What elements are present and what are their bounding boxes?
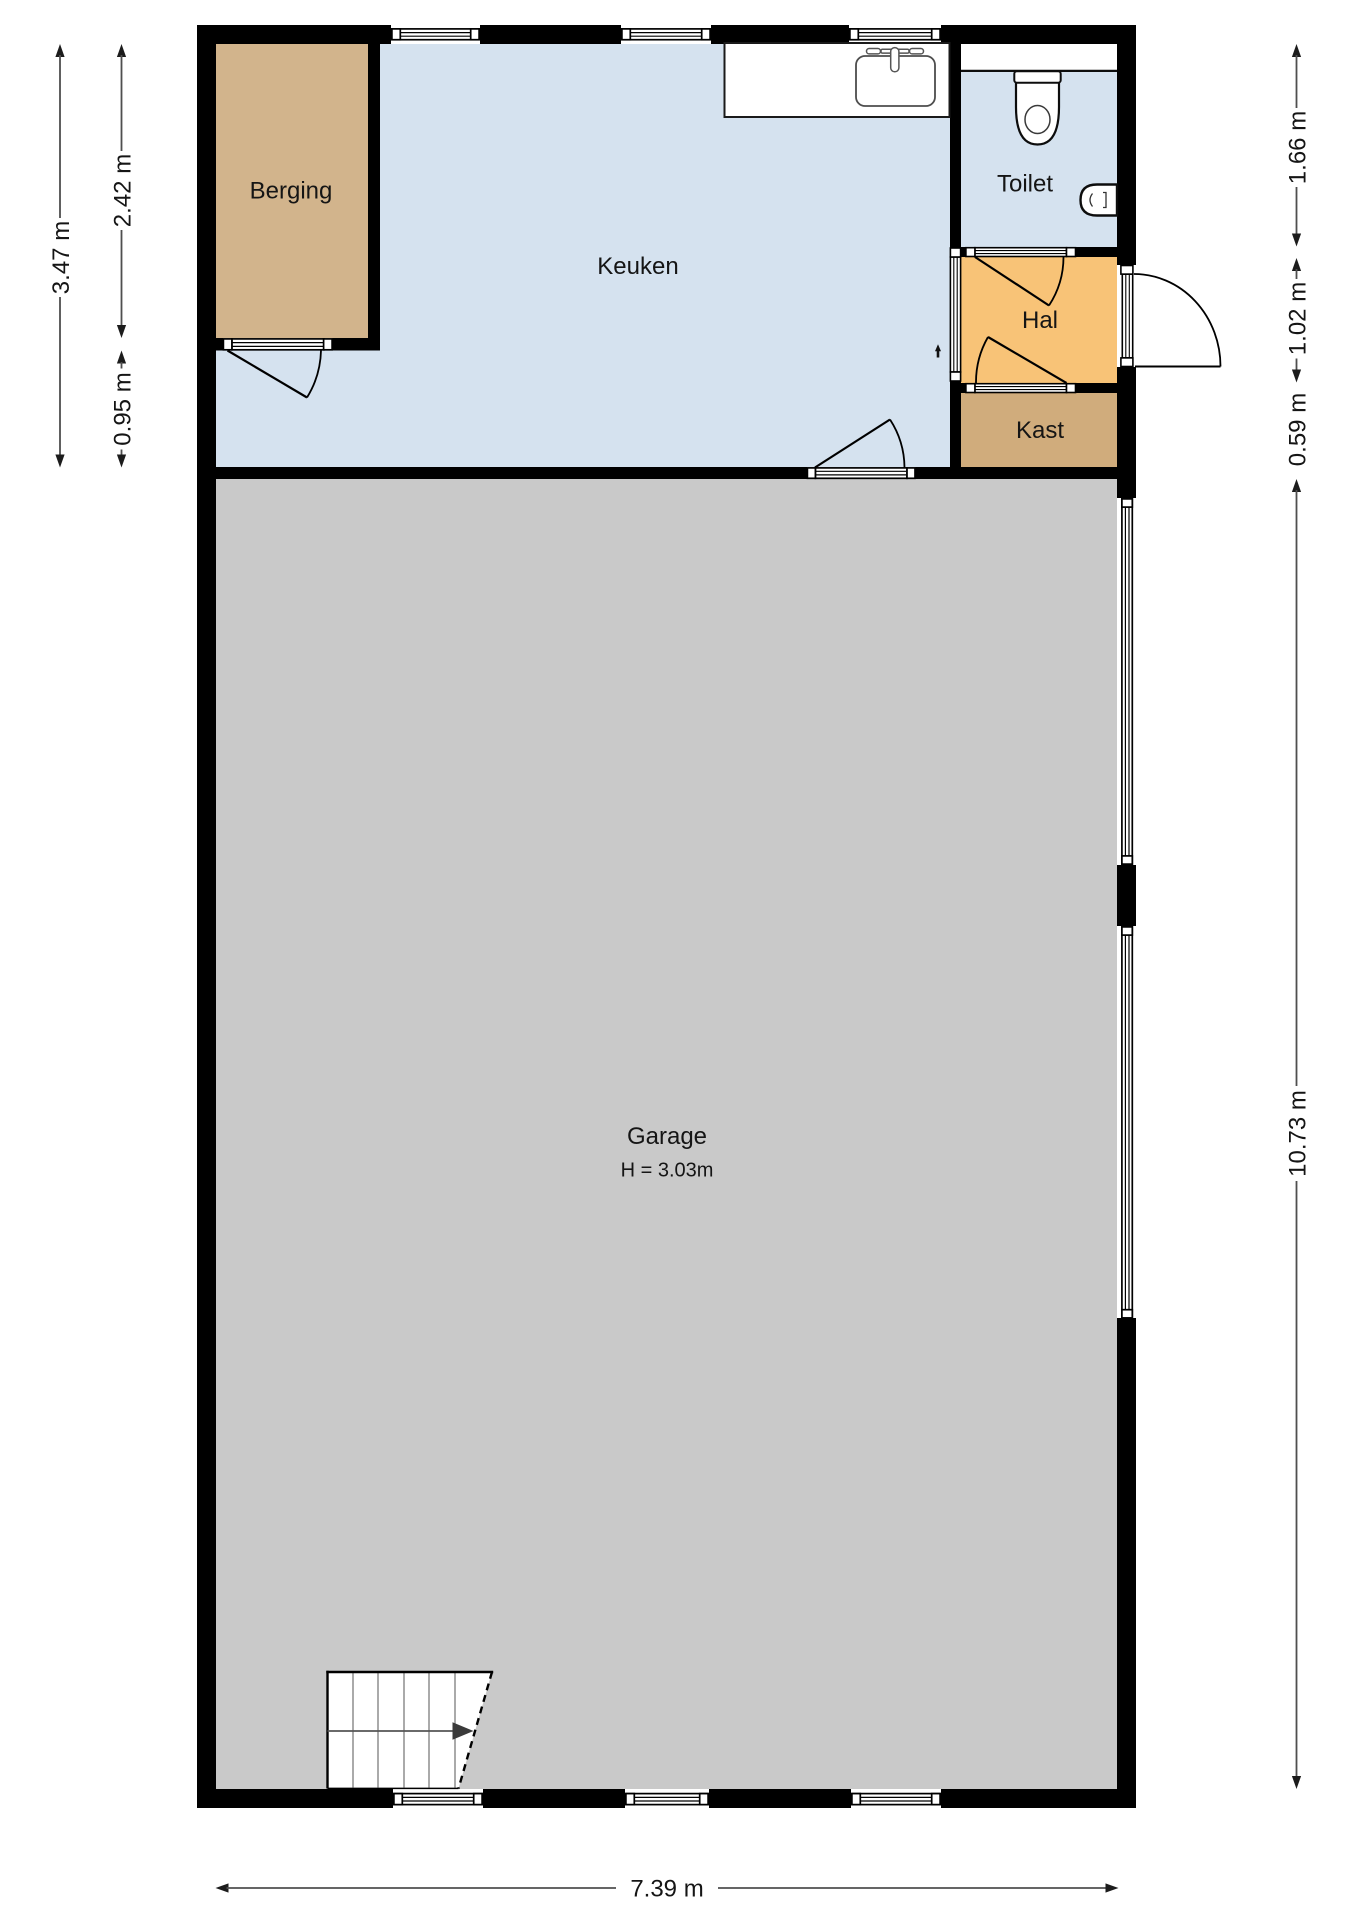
svg-text:Berging: Berging	[250, 178, 333, 205]
svg-text:7.39 m: 7.39 m	[630, 1876, 703, 1903]
svg-text:1.66 m: 1.66 m	[1285, 111, 1312, 184]
svg-text:Hal: Hal	[1022, 307, 1058, 334]
svg-text:1.02 m: 1.02 m	[1285, 282, 1312, 355]
svg-text:H = 3.03m: H = 3.03m	[621, 1160, 714, 1182]
svg-text:0.95 m: 0.95 m	[110, 372, 137, 445]
svg-text:0.59 m: 0.59 m	[1285, 393, 1312, 466]
svg-text:3.47 m: 3.47 m	[48, 221, 75, 294]
svg-text:10.73 m: 10.73 m	[1285, 1090, 1312, 1177]
svg-text:Keuken: Keuken	[597, 253, 678, 280]
svg-text:Toilet: Toilet	[997, 171, 1053, 198]
svg-text:Kast: Kast	[1016, 417, 1064, 444]
svg-text:2.42 m: 2.42 m	[110, 154, 137, 227]
svg-text:Garage: Garage	[627, 1123, 707, 1150]
